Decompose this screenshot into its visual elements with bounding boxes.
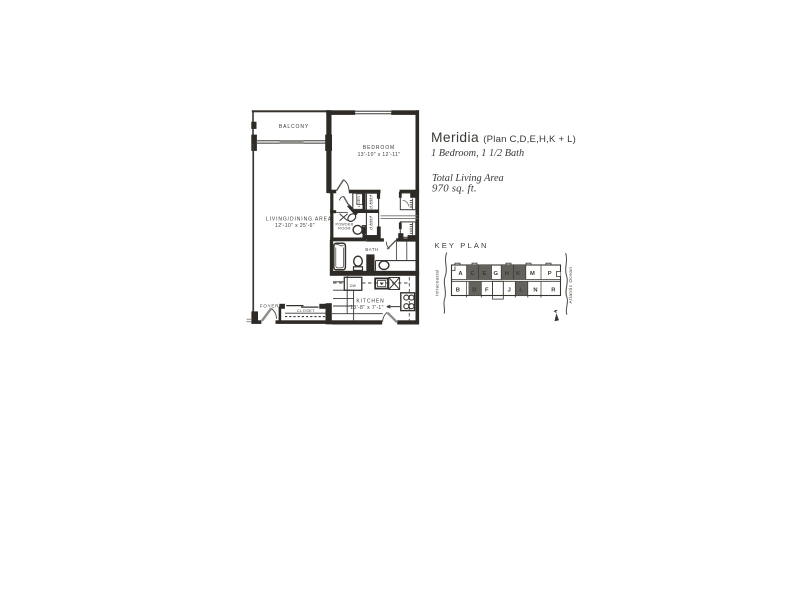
- svg-text:KITCHEN: KITCHEN: [356, 299, 384, 305]
- svg-text:BEDROOM: BEDROOM: [363, 145, 395, 151]
- svg-text:KEY PLAN: KEY PLAN: [435, 241, 489, 250]
- svg-text:CLOSET: CLOSET: [370, 195, 374, 209]
- svg-text:LIVING/DINING AREA: LIVING/DINING AREA: [266, 216, 332, 222]
- svg-text:D: D: [472, 287, 476, 293]
- svg-text:M: M: [530, 271, 535, 277]
- svg-text:LINEN: LINEN: [357, 196, 361, 208]
- svg-text:CLOSET: CLOSET: [297, 309, 315, 313]
- svg-text:H: H: [505, 271, 509, 277]
- svg-text:P: P: [548, 271, 552, 277]
- svg-text:BALCONY: BALCONY: [279, 124, 309, 130]
- svg-text:1 Bedroom, 1 1/2 Bath: 1 Bedroom, 1 1/2 Bath: [431, 148, 524, 159]
- svg-text:FOYER: FOYER: [260, 304, 279, 309]
- svg-text:E: E: [482, 271, 486, 277]
- svg-text:F: F: [485, 287, 489, 293]
- svg-text:13'-10" x 12'-11": 13'-10" x 12'-11": [358, 152, 401, 158]
- svg-text:N: N: [533, 287, 537, 293]
- svg-text:12'-10" x 25'-6": 12'-10" x 25'-6": [275, 223, 315, 229]
- svg-text:B: B: [456, 287, 460, 293]
- svg-text:BATH: BATH: [365, 247, 378, 252]
- svg-text:J: J: [508, 287, 511, 293]
- svg-text:970 sq. ft.: 970 sq. ft.: [432, 183, 477, 195]
- svg-text:L: L: [519, 287, 523, 293]
- svg-text:G: G: [494, 271, 499, 277]
- svg-text:Atlantic Ocean: Atlantic Ocean: [568, 267, 573, 304]
- svg-text:ROOM: ROOM: [338, 227, 350, 231]
- svg-text:13'-8" x 7'-1": 13'-8" x 7'-1": [350, 305, 384, 311]
- svg-text:Intracoastal: Intracoastal: [435, 270, 440, 296]
- svg-text:CLOSET: CLOSET: [370, 216, 374, 230]
- svg-text:DW: DW: [350, 284, 357, 288]
